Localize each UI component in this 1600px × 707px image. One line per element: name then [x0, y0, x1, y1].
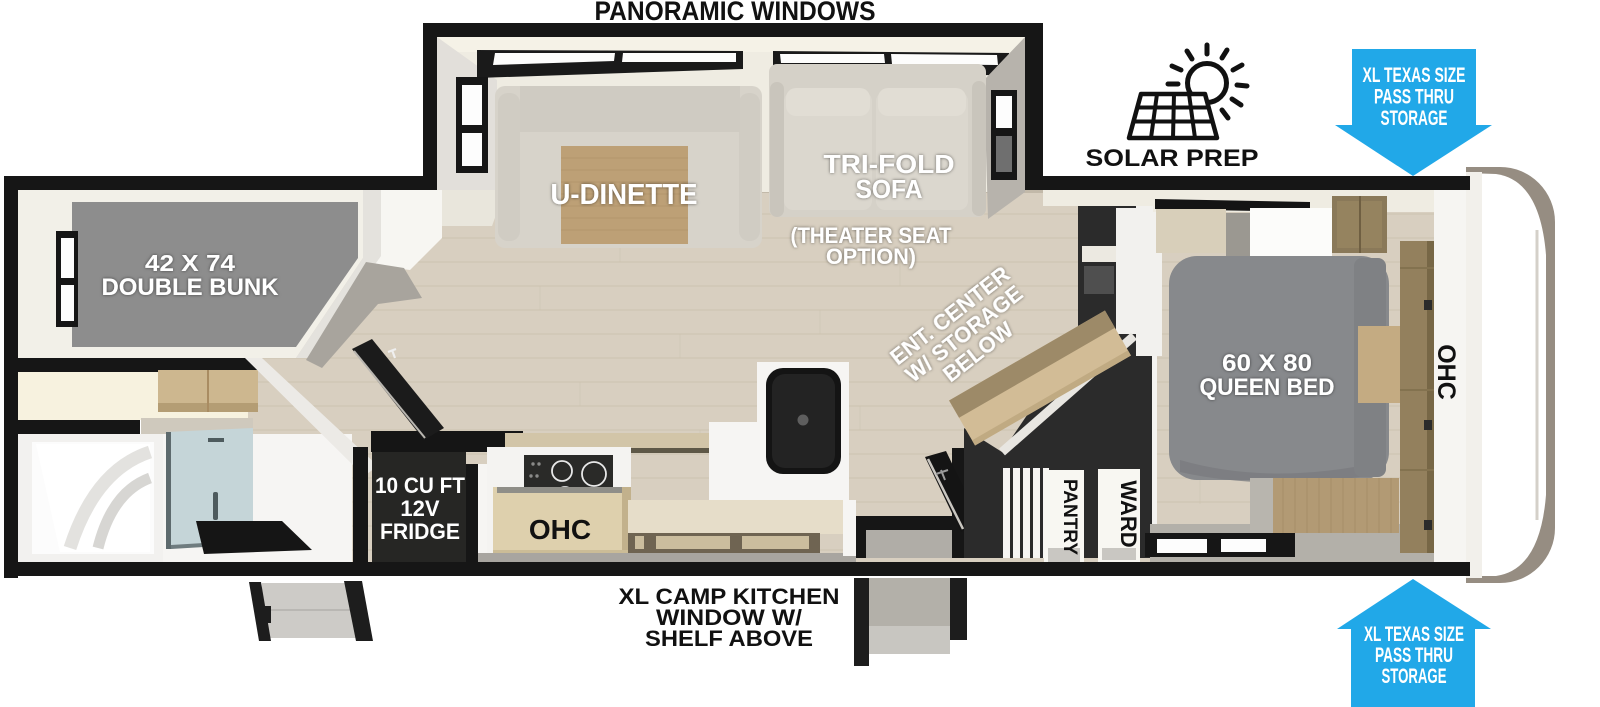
svg-text:SOLAR PREP: SOLAR PREP — [1086, 145, 1259, 172]
svg-text:WARD: WARD — [1116, 480, 1141, 547]
svg-text:PANORAMIC WINDOWS: PANORAMIC WINDOWS — [595, 0, 876, 26]
svg-text:XL TEXAS SIZE: XL TEXAS SIZE — [1363, 64, 1466, 87]
svg-text:STORAGE: STORAGE — [1381, 107, 1448, 130]
svg-text:OHC: OHC — [1432, 344, 1460, 400]
svg-text:STORAGE: STORAGE — [1382, 665, 1447, 688]
svg-text:QUEEN BED: QUEEN BED — [1200, 374, 1335, 401]
svg-text:SHELF ABOVE: SHELF ABOVE — [645, 626, 813, 651]
svg-text:OHC: OHC — [529, 514, 591, 545]
svg-text:OPTION): OPTION) — [826, 244, 916, 269]
svg-text:SOFA: SOFA — [856, 174, 923, 204]
svg-text:PASS THRU: PASS THRU — [1374, 86, 1454, 109]
svg-text:U-DINETTE: U-DINETTE — [551, 179, 698, 211]
svg-text:10 CU FT: 10 CU FT — [375, 473, 466, 498]
svg-text:XL TEXAS SIZE: XL TEXAS SIZE — [1364, 623, 1464, 646]
svg-text:PASS THRU: PASS THRU — [1375, 644, 1453, 667]
svg-text:PANTRY: PANTRY — [1059, 479, 1080, 555]
svg-text:60 X 80: 60 X 80 — [1222, 350, 1312, 377]
svg-text:12V: 12V — [400, 496, 439, 521]
svg-text:42 X 74: 42 X 74 — [145, 250, 235, 276]
svg-text:FRIDGE: FRIDGE — [380, 519, 460, 544]
svg-text:DOUBLE BUNK: DOUBLE BUNK — [102, 274, 280, 301]
